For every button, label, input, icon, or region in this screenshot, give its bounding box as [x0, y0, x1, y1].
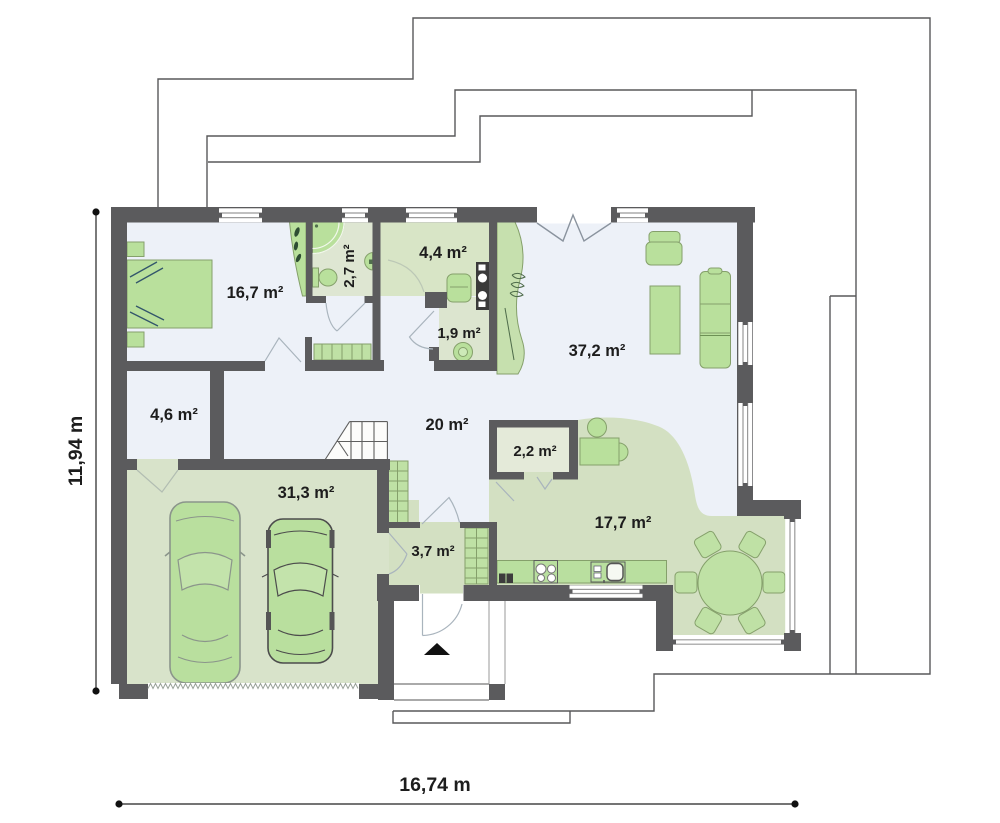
svg-text:20 m²: 20 m² [425, 416, 469, 434]
svg-text:17,7 m²: 17,7 m² [595, 514, 652, 532]
svg-text:2,7 m²: 2,7 m² [341, 244, 358, 287]
svg-text:16,74 m: 16,74 m [399, 774, 471, 796]
svg-text:4,4 m²: 4,4 m² [419, 244, 467, 262]
svg-text:11,94 m: 11,94 m [65, 416, 87, 486]
svg-text:2,2 m²: 2,2 m² [513, 443, 556, 460]
svg-text:16,7 m²: 16,7 m² [227, 284, 284, 302]
svg-text:31,3 m²: 31,3 m² [278, 484, 335, 502]
svg-text:37,2 m²: 37,2 m² [569, 342, 626, 360]
svg-text:1,9 m²: 1,9 m² [437, 325, 480, 342]
svg-text:4,6 m²: 4,6 m² [150, 406, 198, 424]
svg-text:3,7 m²: 3,7 m² [411, 543, 454, 560]
